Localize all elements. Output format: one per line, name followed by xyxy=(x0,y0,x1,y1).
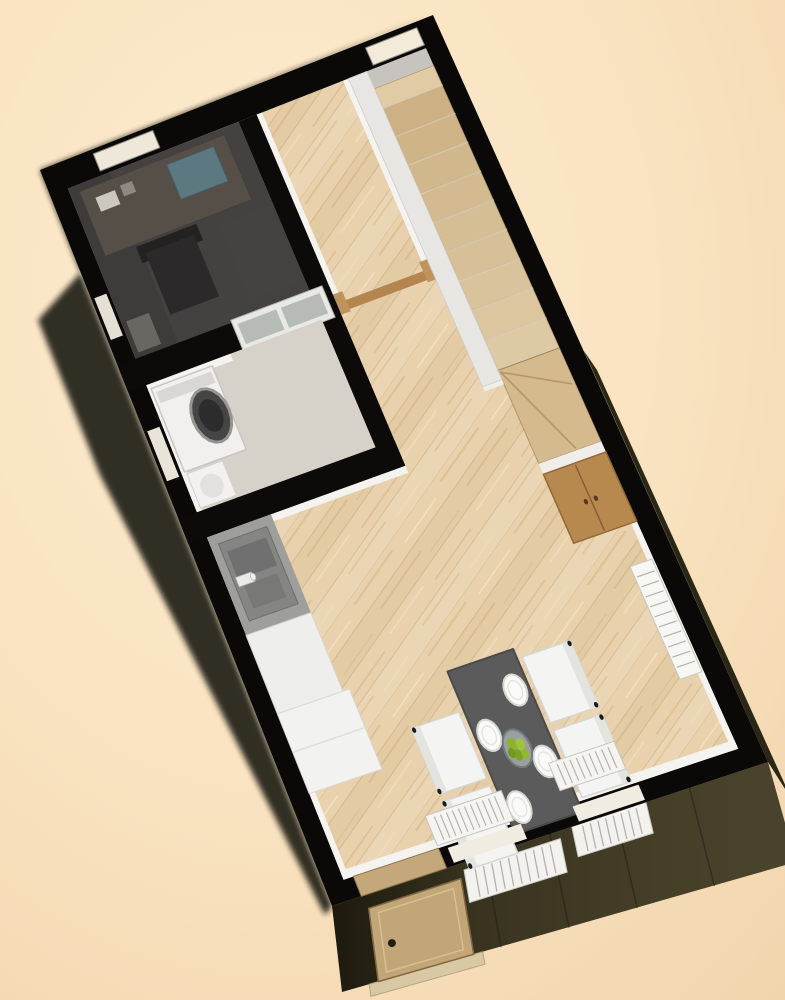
floorplan-3d-render xyxy=(0,0,785,1000)
floorplan-3d-view xyxy=(0,0,785,1000)
facade-door-handle xyxy=(388,939,396,947)
